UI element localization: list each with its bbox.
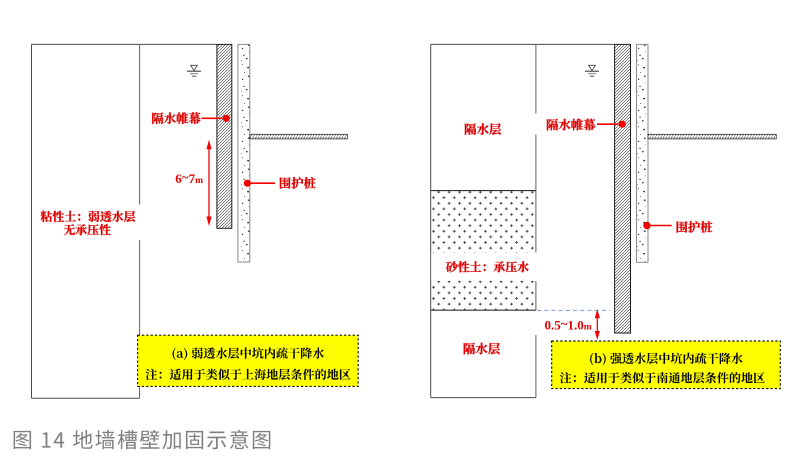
- svg-text:6~7m: 6~7m: [175, 169, 203, 186]
- svg-text:0.5~1.0m: 0.5~1.0m: [545, 316, 592, 333]
